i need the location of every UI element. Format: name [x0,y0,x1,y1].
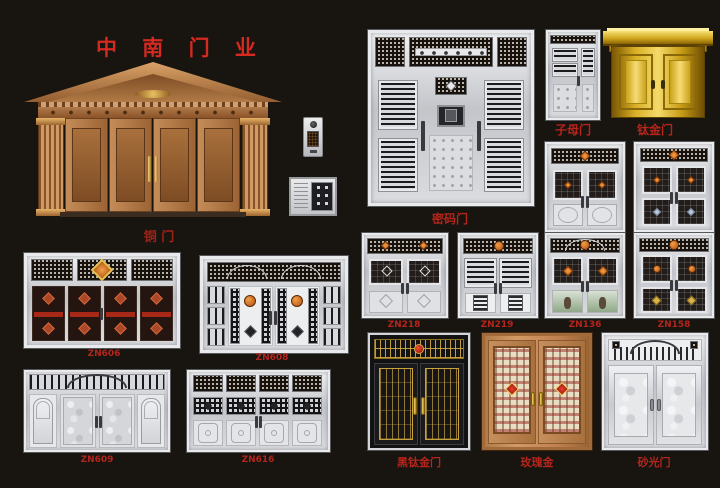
transom-grille [226,375,256,392]
transom-grille [31,259,73,281]
door-zn218 [362,233,448,318]
embossed-circle [238,430,244,436]
keypad-buttons [311,182,333,211]
door-handle [99,416,102,428]
dragon-relief-panel [662,373,696,437]
door-zn616 [187,370,330,452]
door-handle [657,399,661,411]
side-leaf-grille [323,328,341,346]
transom-grille [259,375,289,392]
intercom-speaker-grille [307,131,319,147]
label-password-door: 密码门 [420,210,480,227]
left-leaf-upper-louver [379,81,417,129]
left-column [38,118,64,216]
carved-panel [116,128,145,202]
right-column-capital [240,118,270,125]
scenic-figure [599,297,606,309]
door-zn158 [634,233,714,318]
door-handle [675,192,678,204]
right-leaf-lower-louver [485,139,523,191]
dragon-relief-panel [614,373,648,437]
transom-grille [550,35,596,44]
zimu-door [546,30,600,120]
sanded-door [602,333,708,450]
door-handle [494,283,497,294]
gold-leaf-inner-panel [625,60,647,104]
door-handle [95,416,98,428]
label-zn158: ZN158 [644,320,704,330]
wide-leaf-lower-panel [553,84,577,112]
round-medallion [291,295,303,307]
transom-corner-grille [612,341,620,349]
red-band [34,312,63,317]
intercom-camera [310,121,317,128]
transom-grille [292,375,322,392]
carved-relief-panel [102,397,132,445]
gold-lattice-panel [425,368,459,440]
label-zn609: ZN609 [67,455,127,465]
label-copper-door: 铜 门 [128,226,190,245]
door-handle [499,283,502,294]
red-band [70,312,99,317]
left-leaf-lower-louver [379,139,417,191]
upper-louver-panel [465,259,496,287]
rose-gold-door [482,333,592,450]
door-handle [539,392,543,406]
keypad-text-lines [294,183,308,209]
label-sanded-door: 砂光门 [624,454,684,470]
side-leaf-grille [207,286,225,304]
leaf-grille-strip [277,288,287,344]
copper-door [24,62,282,222]
poster-canvas: 中 南 门 业 铜 门 [0,0,720,488]
door-keypad-display [445,109,457,122]
door-handle [650,399,654,411]
crown-cornice [603,31,713,46]
label-zn136: ZN136 [555,320,615,330]
arched-panel-inner [144,401,158,419]
pediment-ornament [135,90,171,98]
door-handle [581,281,584,292]
door-handle [670,192,673,204]
narrow-leaf-lower-panel [582,84,594,112]
round-medallion [653,265,661,273]
door-handle [401,283,404,294]
transom-grille [497,37,527,67]
door-handle [477,121,481,151]
door-handle [675,280,678,291]
door-handle [586,281,589,292]
frieze-dots [44,109,262,116]
label-zn219: ZN219 [467,320,527,330]
label-titanium-gold-door: 钛金门 [627,121,683,138]
poster-title: 中 南 门 业 [96,32,265,62]
side-leaf-grille [207,307,225,325]
red-medallion [414,344,424,354]
transom-grille [131,259,173,281]
embossed-oval [592,207,612,223]
silver-door-a [545,142,625,232]
door-handle [406,283,409,294]
round-medallion [669,240,679,250]
door-handle [531,392,535,406]
door-handle [259,416,262,428]
transom-corner-grille [690,341,698,349]
door-zn606 [24,253,180,348]
label-zn616: ZN616 [228,455,288,465]
door-zn136 [545,233,625,318]
door-handle [148,156,151,182]
door-zn608 [200,256,348,353]
embossed-circle [205,430,211,436]
label-zn608: ZN608 [242,353,302,363]
carved-relief-panel [63,397,93,445]
gold-lattice-panel [379,368,413,440]
door-handle [413,397,417,415]
carved-panel [160,128,189,202]
left-column-capital [36,118,66,125]
round-medallion [580,240,590,250]
label-rose-gold-door: 玫瑰金 [507,454,567,470]
round-medallion [244,295,256,307]
round-medallion [494,241,504,251]
transom-grille [375,37,405,67]
intercom-button [310,150,317,153]
red-band [142,312,171,317]
password-door [368,30,534,206]
wide-leaf-louver [553,64,577,76]
embossed-circle [271,430,277,436]
label-zn218: ZN218 [374,320,434,330]
door-handle [581,196,584,208]
right-leaf-upper-louver [485,81,523,129]
narrow-leaf-louver [582,49,594,76]
red-band [106,312,135,317]
carved-panel [204,128,233,202]
side-leaf-grille [323,286,341,304]
door-handle [586,196,589,208]
round-medallion [688,265,696,273]
silver-door-b [634,142,714,232]
door-handle [651,80,655,89]
ornate-motif [508,295,523,311]
transom-ornament-strip [415,48,487,56]
video-intercom [303,117,323,157]
frieze-dentils [38,102,268,107]
door-handle [269,311,272,325]
transom-grille [207,262,341,282]
door-handle [661,80,665,89]
arched-panel-inner [36,401,50,419]
embossed-oval [558,207,578,223]
label-zn606: ZN606 [74,349,134,359]
access-keypad-panel [289,177,337,216]
transom-grille [193,375,223,392]
door-zn219 [458,233,538,318]
side-leaf-grille [323,307,341,325]
door-handle [255,416,258,428]
door-handle [421,397,425,415]
door-handle [421,121,425,151]
door-handle [274,311,277,325]
wide-leaf-louver [553,49,577,61]
gold-leaf-inner-panel [669,60,691,104]
carved-panel [72,128,101,202]
black-titanium-door [368,333,470,450]
ornate-motif [473,295,488,311]
label-black-titanium-door: 黑钛金门 [384,454,454,470]
center-dotted-panel [429,135,473,191]
side-leaf-grille [207,328,225,346]
threshold [60,212,246,217]
leaf-grille-strip [308,288,318,344]
door-handle [670,280,673,291]
right-column [242,118,268,216]
scenic-figure [564,297,571,309]
embossed-circle [304,430,310,436]
door-handle [100,308,103,320]
leaf-grille-strip [230,288,240,344]
door-handle [577,76,580,86]
upper-louver-panel [500,259,531,287]
label-zimu-door: 子母门 [545,121,601,138]
transom-grille [367,238,443,254]
door-handle [155,156,158,182]
titanium-gold-door [603,28,713,120]
door-zn609 [24,370,170,452]
